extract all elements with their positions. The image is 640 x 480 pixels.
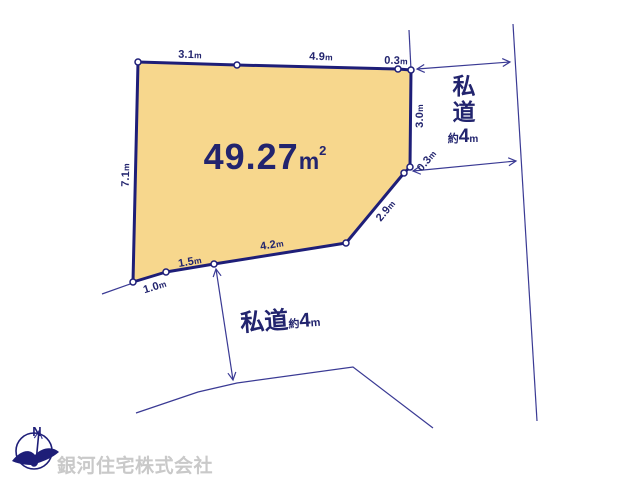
area-value: 49.27 [204,136,299,177]
road-boundary-right [513,24,537,421]
vertex-marker [130,279,136,285]
right-road-width-arrow-top [417,62,510,69]
dim-unit: m [194,50,202,60]
road-boundary-extension-top [409,30,411,70]
approx-prefix: 約 [288,318,300,331]
width-value: 4 [299,309,312,332]
land-plot-diagram: N 49.27m2 3.1m 4.9m 0.3m 3.0m 0.3m 2.9m … [0,0,640,480]
vertex-marker [343,240,349,246]
vertex-marker [234,62,240,68]
area-exponent: 2 [319,143,326,158]
dim-label-top-2: 4.9m [309,51,333,64]
dim-value: 3.1 [178,49,194,62]
parcel-area-label: 49.27m2 [204,136,327,178]
company-watermark: 銀河住宅株式会社 [57,451,213,478]
dim-value: 4.9 [309,51,325,64]
plot-drawing: N [0,0,640,480]
dim-label-top-3: 0.3m [384,55,408,68]
dim-unit: m [275,238,284,249]
vertex-marker [211,261,217,267]
compass-north-label: N [32,424,41,439]
width-unit: m [469,134,478,145]
vertex-marker [163,269,169,275]
road-name: 私道 [239,307,289,337]
compass-north-icon: N [12,424,59,469]
dim-value: 7.1 [120,171,132,187]
road-boundary-extension-left [102,283,133,294]
bottom-road-width-arrow [216,269,233,380]
dim-value: 3.0 [414,112,426,128]
width-unit: m [310,317,321,330]
width-value: 4 [459,126,470,147]
dim-unit: m [121,163,131,171]
vertex-marker [408,67,414,73]
bottom-road-label: 私道約4m [239,298,321,338]
road-boundary-bottom [136,367,433,428]
right-road-width: 約4m [448,126,478,148]
dim-unit: m [415,104,425,112]
dim-label-right-1: 3.0m [414,104,426,128]
dim-label-top-1: 3.1m [178,49,202,62]
vertex-marker [401,170,407,176]
area-unit: m [299,148,319,174]
dim-unit: m [400,56,408,66]
approx-prefix: 約 [448,133,459,145]
dim-value: 4.2 [259,238,277,252]
vertex-marker [135,59,141,65]
right-road-name: 私道 [451,74,479,126]
dim-value: 0.3 [384,55,400,68]
dim-unit: m [193,255,202,266]
compass-bird-shape [12,448,59,467]
dim-label-left-1: 7.1m [120,163,132,187]
dim-unit: m [325,52,333,62]
vertex-marker [407,164,413,170]
